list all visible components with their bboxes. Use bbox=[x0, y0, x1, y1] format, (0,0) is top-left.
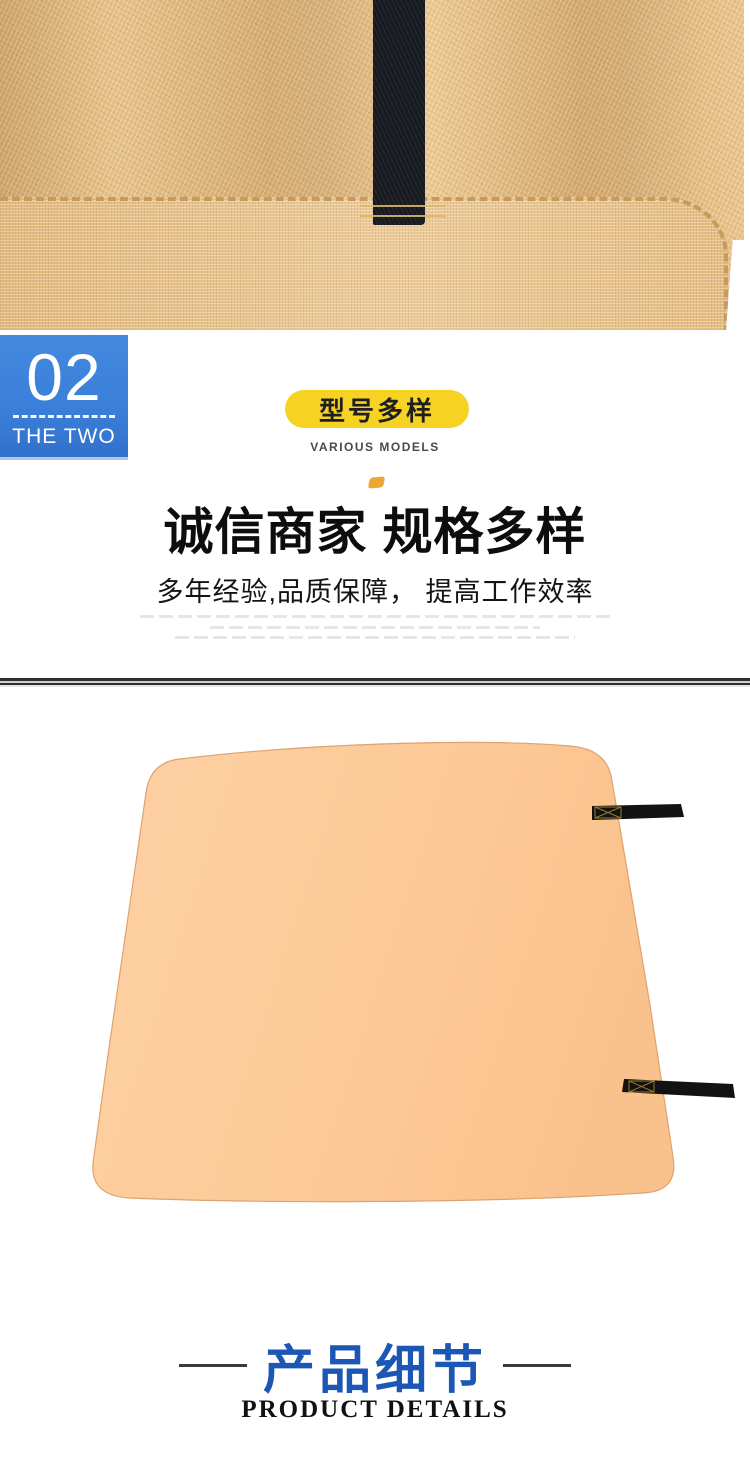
details-header: 产品细节 bbox=[0, 1332, 750, 1398]
fine-print-row bbox=[175, 636, 575, 639]
strap-stitch-line bbox=[360, 215, 446, 217]
fine-print-row bbox=[210, 626, 540, 629]
badge-dashed-divider bbox=[13, 415, 115, 418]
accent-mark bbox=[368, 476, 386, 488]
model-pill-label: 型号多样 bbox=[319, 391, 435, 428]
product-image-mat bbox=[0, 695, 750, 1225]
model-pill-sublabel: VARIOUS MODELS bbox=[0, 440, 750, 454]
details-title: 产品细节 bbox=[263, 1328, 487, 1403]
model-pill: 型号多样 bbox=[285, 390, 469, 428]
details-line-left bbox=[179, 1364, 247, 1367]
details-subtitle: PRODUCT DETAILS bbox=[0, 1396, 750, 1424]
double-divider bbox=[0, 676, 750, 689]
mat-strap-top bbox=[592, 804, 684, 820]
product-detail-page: 02 THE TWO 型号多样 VARIOUS MODELS 诚信商家 规格多样… bbox=[0, 0, 750, 1464]
product-photo bbox=[0, 0, 750, 330]
headline-subtitle: 多年经验,品质保障， 提高工作效率 bbox=[0, 570, 750, 609]
details-line-right bbox=[503, 1364, 571, 1367]
strap-stitch-line bbox=[360, 205, 446, 207]
hanging-strap bbox=[373, 0, 425, 225]
section-number: 02 bbox=[26, 344, 101, 410]
section-number-badge: 02 THE TWO bbox=[0, 335, 128, 457]
mat-shape bbox=[93, 742, 674, 1201]
headline-title: 诚信商家 规格多样 bbox=[0, 492, 750, 564]
fine-print-row bbox=[140, 615, 610, 618]
